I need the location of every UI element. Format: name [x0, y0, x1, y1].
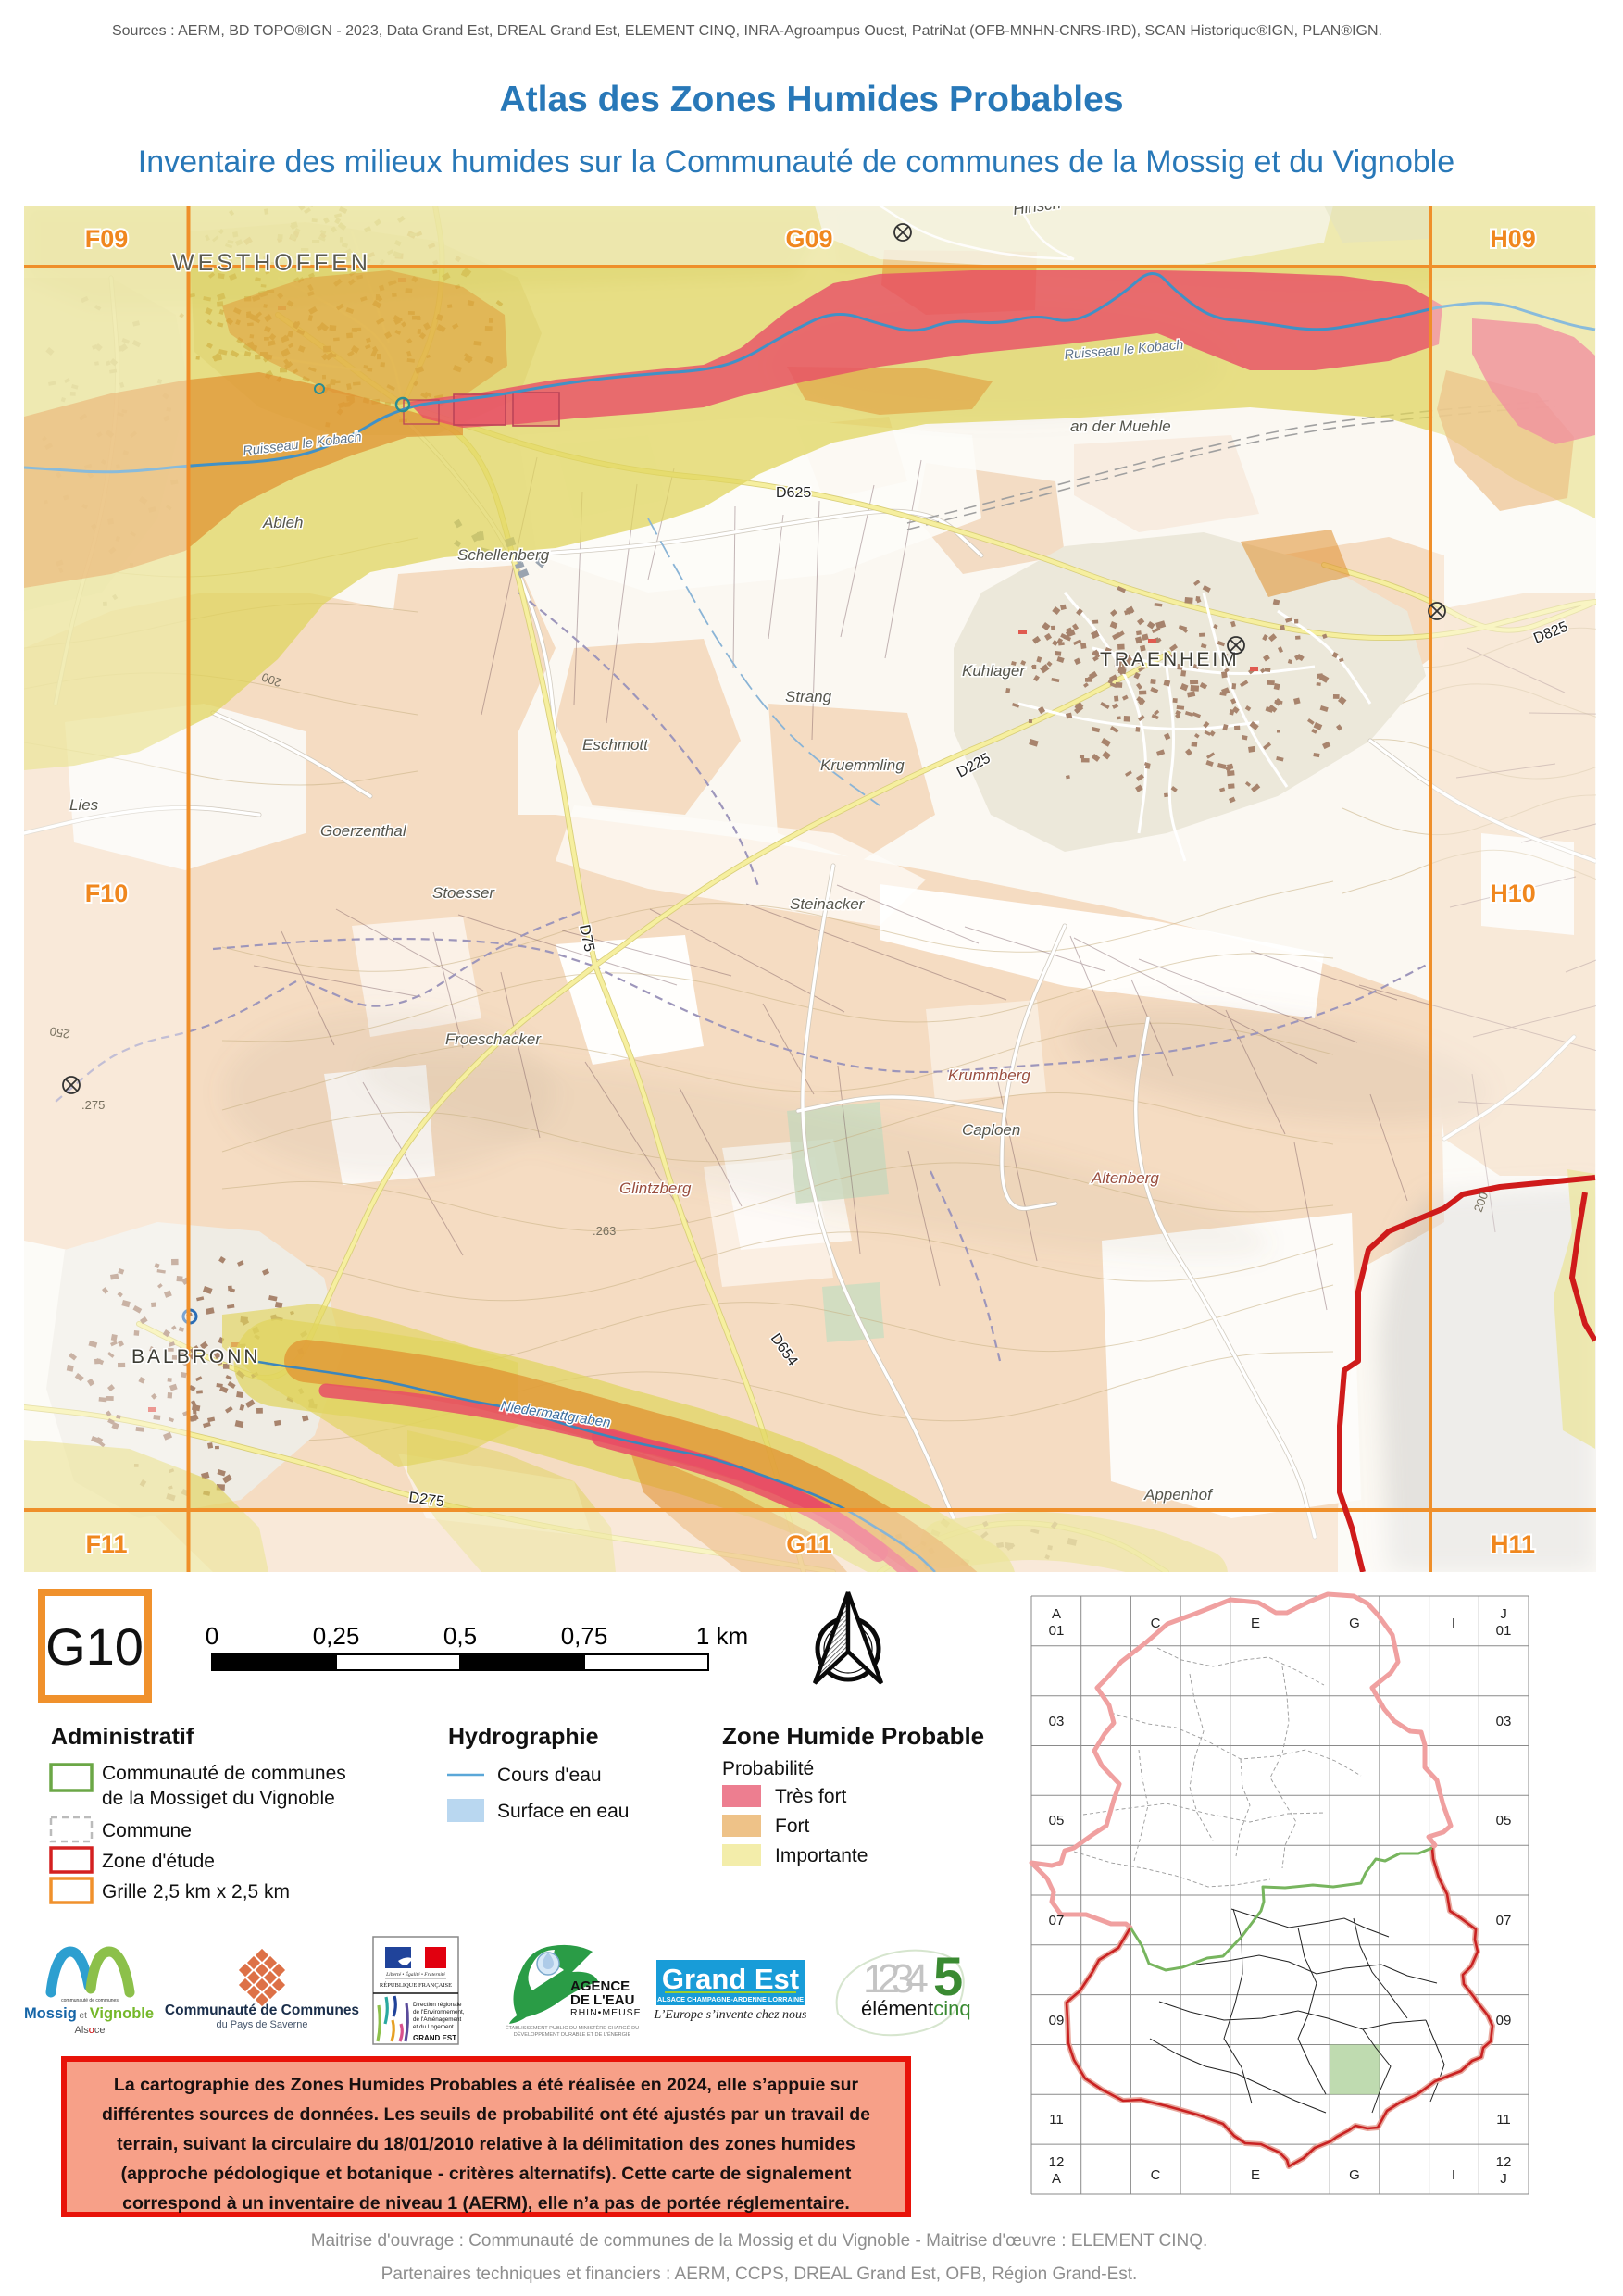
svg-text:de l'Aménagement: de l'Aménagement	[413, 2016, 462, 2023]
svg-text:0,5: 0,5	[443, 1622, 477, 1650]
svg-text:Krummberg: Krummberg	[948, 1067, 1030, 1084]
svg-text:différentes sources de données: différentes sources de données. Les seui…	[102, 2104, 870, 2125]
svg-text:Commune: Commune	[102, 1820, 192, 1841]
svg-text:1 km: 1 km	[696, 1622, 748, 1650]
svg-text:Kruemmling: Kruemmling	[820, 756, 905, 774]
svg-text:03: 03	[1049, 1714, 1065, 1729]
svg-text:Caploen: Caploen	[962, 1121, 1020, 1139]
svg-text:an der Muehle: an der Muehle	[1070, 418, 1171, 435]
svg-text:E: E	[1251, 1616, 1260, 1631]
svg-text:DÉVELOPPEMENT DURABLE ET DE L': DÉVELOPPEMENT DURABLE ET DE L'ÉNERGIE	[514, 2031, 631, 2038]
svg-text:Importante: Importante	[775, 1845, 868, 1866]
svg-text:.275: .275	[81, 1098, 105, 1112]
svg-text:communauté de communes: communauté de communes	[61, 1998, 119, 2003]
svg-text:05: 05	[1049, 1813, 1065, 1828]
svg-text:C: C	[1151, 1616, 1161, 1631]
svg-text:Surface en eau: Surface en eau	[497, 1801, 629, 1822]
svg-text:élémentcinq: élémentcinq	[861, 1997, 971, 2020]
svg-text:WESTHOFFEN: WESTHOFFEN	[172, 250, 371, 276]
svg-text:F10: F10	[85, 880, 129, 907]
svg-text:Cours d'eau: Cours d'eau	[497, 1765, 602, 1786]
svg-text:H11: H11	[1491, 1530, 1535, 1558]
svg-text:Kuhlager: Kuhlager	[962, 662, 1026, 680]
svg-text:I: I	[1452, 2167, 1455, 2183]
svg-text:1234: 1234	[863, 1956, 928, 2002]
svg-text:09: 09	[1049, 2013, 1065, 2028]
svg-text:(approche pédologique et botan: (approche pédologique et botanique - cri…	[121, 2164, 852, 2184]
svg-text:ÉTABLISSEMENT PUBLIC DU MINIST: ÉTABLISSEMENT PUBLIC DU MINISTÈRE CHARGÉ…	[506, 2025, 639, 2031]
svg-text:07: 07	[1496, 1913, 1512, 1928]
svg-text:Goerzenthal: Goerzenthal	[320, 822, 407, 840]
svg-text:11: 11	[1496, 2112, 1511, 2128]
svg-text:H09: H09	[1490, 225, 1536, 253]
svg-text:H10: H10	[1490, 880, 1536, 907]
svg-text:TRAENHEIM: TRAENHEIM	[1100, 649, 1240, 670]
svg-text:01: 01	[1049, 1623, 1065, 1639]
svg-text:J: J	[1500, 1606, 1507, 1622]
svg-text:A: A	[1052, 1606, 1061, 1622]
svg-text:Alsoce: Alsoce	[74, 2025, 105, 2036]
svg-text:12: 12	[1496, 2154, 1512, 2170]
svg-text:Glintzberg: Glintzberg	[619, 1179, 692, 1197]
svg-text:Lies: Lies	[69, 796, 99, 814]
svg-text:E: E	[1251, 2167, 1260, 2183]
svg-text:Ableh: Ableh	[262, 514, 303, 531]
svg-text:BALBRONN: BALBRONN	[131, 1346, 261, 1367]
svg-text:Schellenberg: Schellenberg	[457, 546, 550, 564]
svg-text:Direction régionale: Direction régionale	[413, 2002, 462, 2008]
svg-text:Strang: Strang	[785, 688, 832, 705]
svg-text:J: J	[1500, 2171, 1507, 2187]
svg-text:Stoesser: Stoesser	[432, 884, 495, 902]
svg-text:07: 07	[1049, 1913, 1065, 1928]
svg-text:Hydrographie: Hydrographie	[448, 1724, 599, 1750]
svg-text:A: A	[1052, 2171, 1061, 2187]
svg-text:Zone Humide Probable: Zone Humide Probable	[722, 1722, 984, 1750]
svg-text:05: 05	[1496, 1813, 1512, 1828]
svg-text:0,25: 0,25	[313, 1622, 360, 1650]
svg-text:Administratif: Administratif	[51, 1724, 194, 1750]
svg-text:Très fort: Très fort	[775, 1786, 847, 1807]
svg-text:12: 12	[1049, 2154, 1065, 2170]
svg-text:La cartographie des Zones Humi: La cartographie des Zones Humides Probab…	[114, 2075, 859, 2095]
svg-text:du Pays de Saverne: du Pays de Saverne	[216, 2019, 307, 2030]
svg-text:RHIN•MEUSE: RHIN•MEUSE	[570, 2007, 642, 2018]
svg-text:Communauté de Communes: Communauté de Communes	[165, 2003, 359, 2018]
svg-text:Eschmott: Eschmott	[582, 736, 649, 754]
svg-text:Steinacker: Steinacker	[790, 895, 866, 913]
svg-text:0,75: 0,75	[561, 1622, 608, 1650]
svg-text:Liberté • Égalité • Fraternité: Liberté • Égalité • Fraternité	[385, 1970, 445, 1978]
svg-text:G09: G09	[785, 225, 832, 253]
svg-text:et du Logement: et du Logement	[413, 2024, 454, 2030]
svg-text:I: I	[1452, 1616, 1455, 1631]
svg-text:RÉPUBLIQUE FRANÇAISE: RÉPUBLIQUE FRANÇAISE	[380, 1981, 452, 1989]
svg-text:Froeschacker: Froeschacker	[445, 1030, 542, 1048]
svg-text:DE L'EAU: DE L'EAU	[570, 1992, 634, 2008]
svg-text:ALSACE CHAMPAGNE-ARDENNE LORRA: ALSACE CHAMPAGNE-ARDENNE LORRAINE	[657, 1995, 804, 2003]
svg-text:Communauté de communes: Communauté de communes	[102, 1763, 346, 1784]
svg-text:Altenberg: Altenberg	[1091, 1169, 1159, 1187]
svg-text:L’Europe s’invente chez nous: L’Europe s’invente chez nous	[654, 2008, 808, 2022]
svg-text:03: 03	[1496, 1714, 1512, 1729]
svg-text:.263: .263	[593, 1224, 616, 1238]
svg-text:Probabilité: Probabilité	[722, 1758, 814, 1779]
svg-text:Grille 2,5 km x 2,5 km: Grille 2,5 km x 2,5 km	[102, 1881, 290, 1903]
svg-text:01: 01	[1496, 1623, 1512, 1639]
svg-text:09: 09	[1496, 2013, 1512, 2028]
svg-text:GRAND EST: GRAND EST	[413, 2034, 456, 2042]
svg-text:Grand Est: Grand Est	[662, 1963, 799, 1995]
svg-text:G: G	[1349, 1616, 1360, 1631]
svg-text:Fort: Fort	[775, 1816, 810, 1837]
svg-text:de la Mossiget du Vignoble: de la Mossiget du Vignoble	[102, 1788, 335, 1809]
svg-text:F09: F09	[85, 225, 129, 253]
svg-text:11: 11	[1049, 2112, 1064, 2128]
svg-text:terrain, suivant la circulaire: terrain, suivant la circulaire du 18/01/…	[117, 2134, 855, 2154]
svg-text:0: 0	[206, 1622, 218, 1650]
svg-text:Mossig et Vignoble: Mossig et Vignoble	[24, 2005, 154, 2022]
svg-text:Zone d'étude: Zone d'étude	[102, 1851, 215, 1872]
svg-text:D625: D625	[776, 485, 811, 501]
svg-text:correspond à un inventaire de: correspond à un inventaire de niveau 1 (…	[122, 2193, 850, 2214]
svg-text:F11: F11	[85, 1530, 127, 1558]
svg-text:G: G	[1349, 2167, 1360, 2183]
svg-text:de l'Environnement,: de l'Environnement,	[413, 2009, 465, 2015]
svg-text:Appenhof: Appenhof	[1143, 1486, 1214, 1504]
svg-text:G10: G10	[45, 1617, 144, 1676]
svg-text:G11: G11	[786, 1530, 832, 1558]
svg-text:C: C	[1151, 2167, 1161, 2183]
